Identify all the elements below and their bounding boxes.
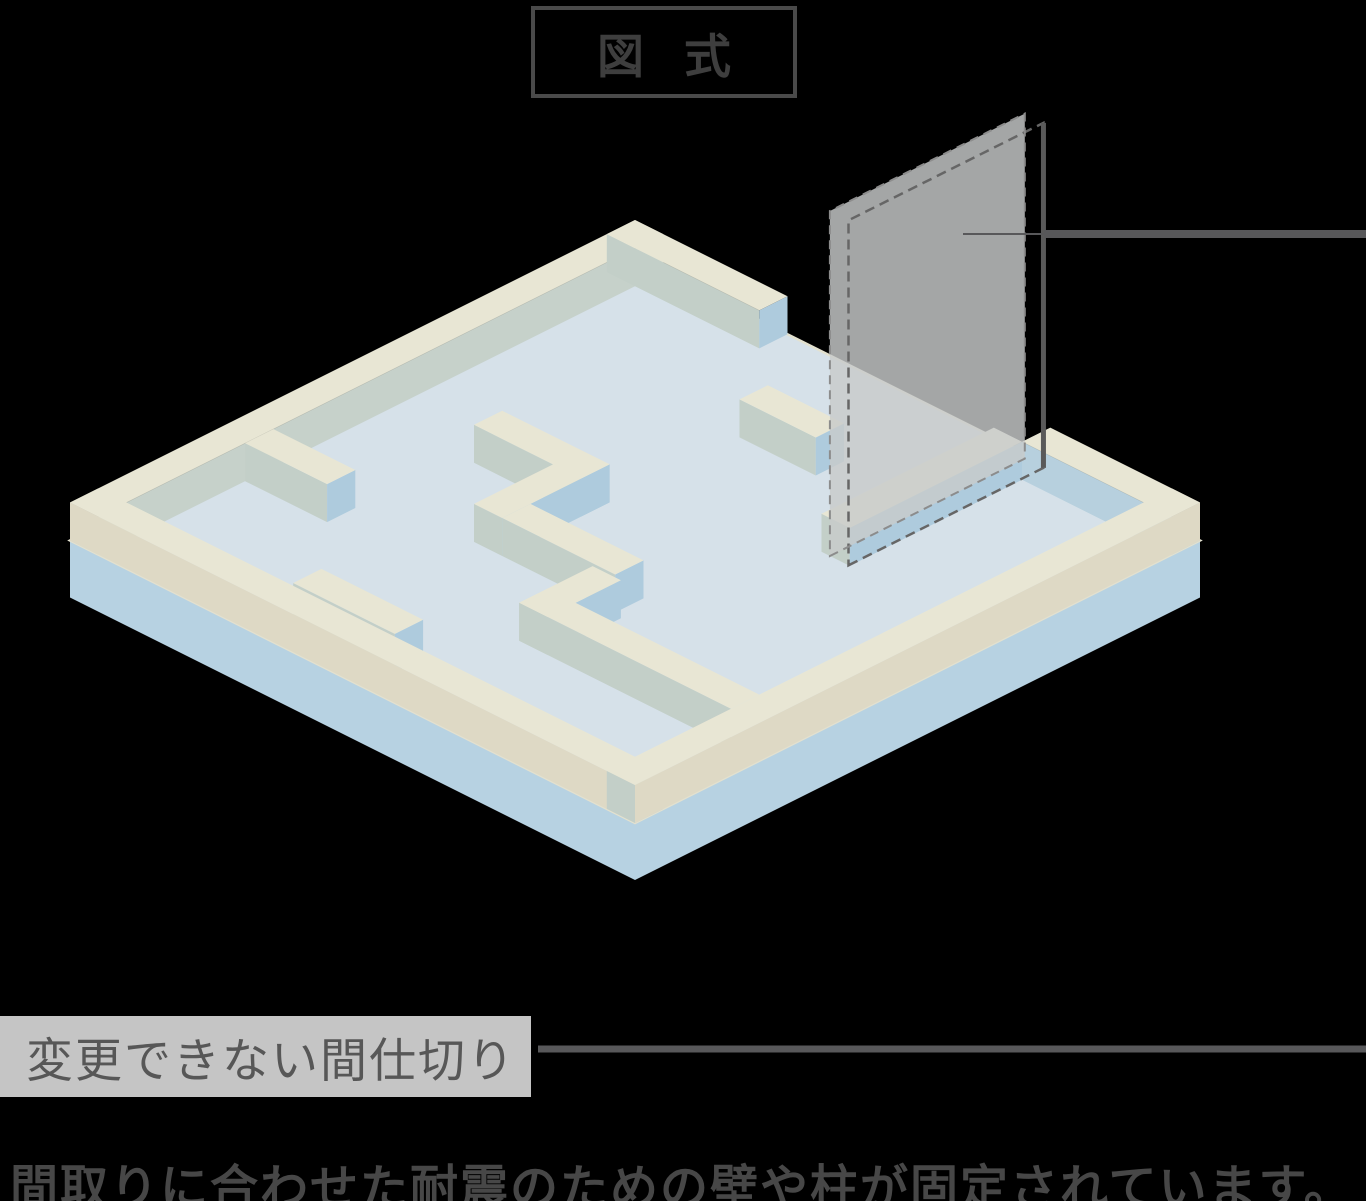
partition-label-text: 変更できない間仕切り — [0, 1022, 516, 1091]
floor-surface — [70, 258, 1200, 823]
partition-label-box: 変更できない間仕切り — [0, 1016, 531, 1097]
page: 図式 変更できない間仕切り 間取りに合わせた耐震のための壁や柱が固定されています… — [0, 0, 1366, 1201]
structure-title-box: 図式 — [531, 6, 797, 98]
structure-title-text: 図式 — [597, 18, 771, 87]
caption-text: 間取りに合わせた耐震のための壁や柱が固定されています。 — [10, 1148, 1354, 1201]
